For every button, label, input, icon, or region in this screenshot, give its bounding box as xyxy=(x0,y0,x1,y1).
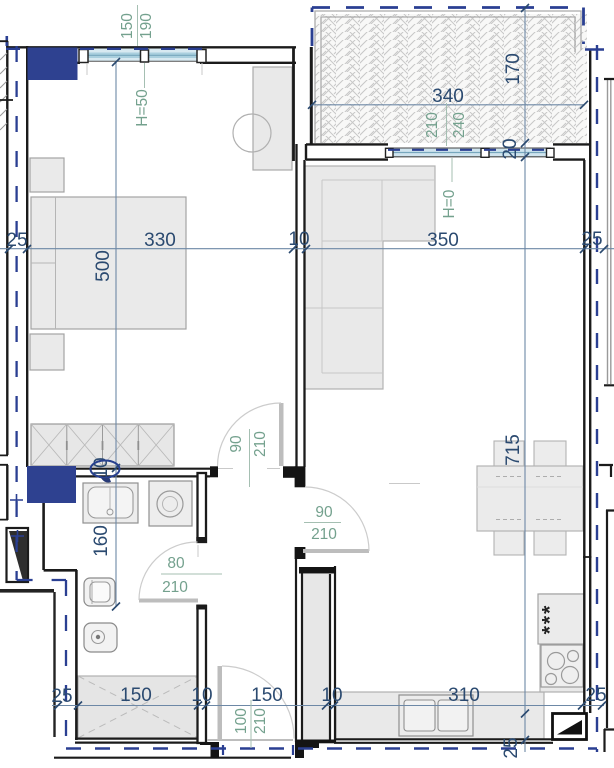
svg-text:25: 25 xyxy=(501,737,522,758)
svg-text:715: 715 xyxy=(503,434,524,466)
svg-text:240: 240 xyxy=(451,112,468,138)
svg-text:160: 160 xyxy=(91,525,112,557)
svg-text:500: 500 xyxy=(93,250,114,282)
svg-text:170: 170 xyxy=(503,53,524,85)
svg-text:H=0: H=0 xyxy=(441,189,458,218)
svg-text:150: 150 xyxy=(251,685,283,706)
svg-text:150: 150 xyxy=(119,13,136,39)
svg-text:90: 90 xyxy=(228,435,245,453)
svg-text:H=50: H=50 xyxy=(134,89,151,127)
svg-text:25: 25 xyxy=(51,686,72,707)
svg-text:210: 210 xyxy=(162,579,188,596)
svg-text:10: 10 xyxy=(191,685,212,706)
svg-text:***: *** xyxy=(539,604,562,635)
svg-text:210: 210 xyxy=(252,708,269,734)
svg-text:20: 20 xyxy=(500,138,521,159)
svg-text:10: 10 xyxy=(321,685,342,706)
svg-text:310: 310 xyxy=(448,685,480,706)
svg-text:25: 25 xyxy=(585,685,606,706)
svg-text:150: 150 xyxy=(120,685,152,706)
svg-text:210: 210 xyxy=(424,112,441,138)
svg-text:190: 190 xyxy=(138,13,155,39)
svg-text:80: 80 xyxy=(167,555,185,572)
svg-text:350: 350 xyxy=(427,230,459,251)
svg-text:25: 25 xyxy=(581,229,602,250)
svg-text:210: 210 xyxy=(252,431,269,457)
svg-text:100: 100 xyxy=(233,708,250,734)
svg-text:10: 10 xyxy=(288,229,309,250)
svg-text:210: 210 xyxy=(311,526,337,543)
svg-text:25: 25 xyxy=(6,230,27,251)
svg-text:340: 340 xyxy=(432,86,464,107)
svg-text:330: 330 xyxy=(144,230,176,251)
svg-text:90: 90 xyxy=(315,504,333,521)
